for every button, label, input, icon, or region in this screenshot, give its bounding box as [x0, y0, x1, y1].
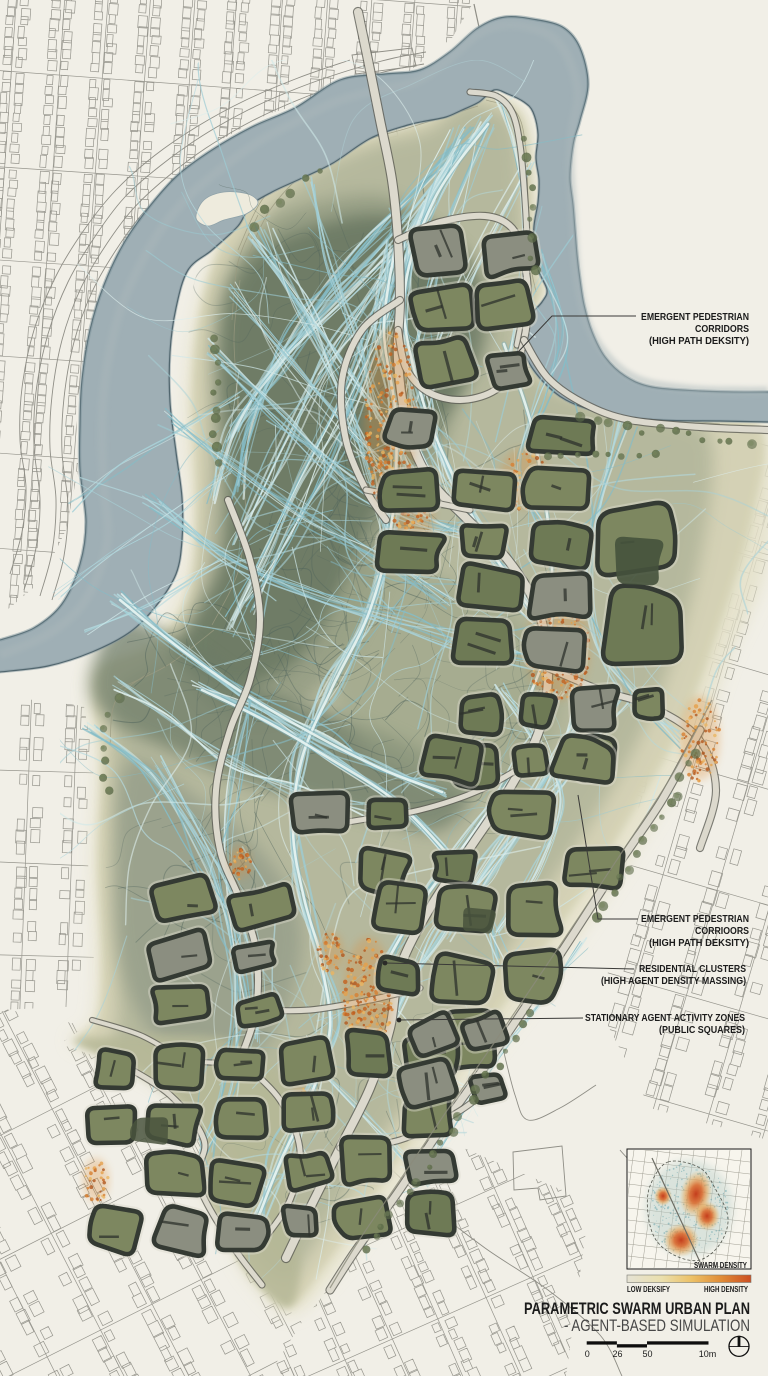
svg-text:(PUBLIC SQUARES): (PUBLIC SQUARES)	[659, 1025, 745, 1036]
svg-text:(HIGH AGENT DENSITY MASSING): (HIGH AGENT DENSITY MASSING)	[601, 976, 746, 987]
svg-text:- AGENT-BASED SIMULATION: - AGENT-BASED SIMULATION	[564, 1317, 750, 1335]
svg-text:(HIGH PATH DEKSITY): (HIGH PATH DEKSITY)	[649, 938, 749, 949]
svg-text:SWARM DENSITY: SWARM DENSITY	[694, 1261, 748, 1270]
svg-text:RESIDENTIAL CLUSTERS: RESIDENTIAL CLUSTERS	[639, 964, 746, 975]
svg-text:EMERGENT PEDESTRIAN: EMERGENT PEDESTRIAN	[641, 914, 749, 925]
svg-text:(HIGH PATH DEKSITY): (HIGH PATH DEKSITY)	[649, 336, 749, 347]
svg-text:0: 0	[585, 1349, 590, 1359]
svg-text:LOW DEKSIFY: LOW DEKSIFY	[627, 1285, 671, 1294]
svg-text:HIGH DENSITY: HIGH DENSITY	[704, 1285, 749, 1294]
svg-text:CORRIOORS: CORRIOORS	[695, 926, 749, 937]
svg-text:EMERGENT PEDESTRIAN: EMERGENT PEDESTRIAN	[641, 312, 749, 323]
svg-text:STATIONARY AGENT ACTIVITY ZONE: STATIONARY AGENT ACTIVITY ZONES	[585, 1013, 745, 1024]
svg-text:26: 26	[612, 1349, 622, 1359]
svg-text:PARAMETRIC SWARM URBAN PLAN: PARAMETRIC SWARM URBAN PLAN	[524, 1299, 750, 1318]
svg-text:10m: 10m	[699, 1349, 717, 1359]
svg-text:50: 50	[642, 1349, 652, 1359]
svg-text:CORRIDORS: CORRIDORS	[695, 324, 749, 335]
